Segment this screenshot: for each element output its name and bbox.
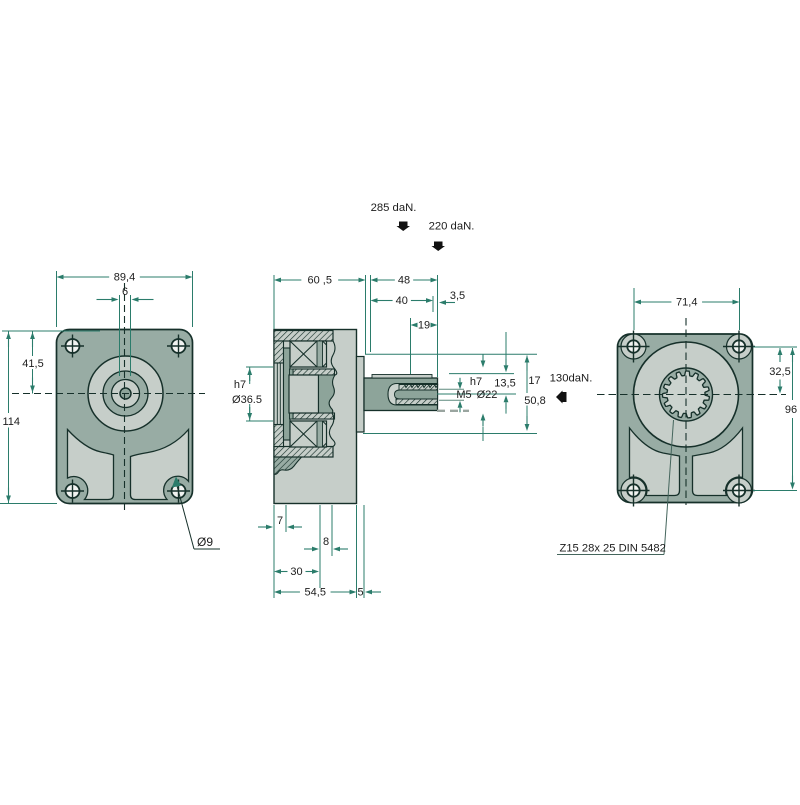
- svg-text:48: 48: [398, 275, 410, 287]
- svg-text:13,5: 13,5: [494, 378, 515, 390]
- svg-text:19: 19: [418, 320, 430, 332]
- svg-text:96: 96: [785, 404, 797, 416]
- svg-text:32,5: 32,5: [769, 366, 790, 378]
- svg-text:6: 6: [122, 286, 128, 298]
- svg-text:Ø22: Ø22: [477, 389, 498, 401]
- svg-text:Ø9: Ø9: [197, 535, 213, 549]
- svg-text:5: 5: [357, 587, 363, 599]
- svg-text:54,5: 54,5: [305, 587, 326, 599]
- svg-text:7: 7: [277, 515, 283, 527]
- svg-text:8: 8: [323, 536, 329, 548]
- svg-text:50,8: 50,8: [524, 395, 545, 407]
- svg-text:89,4: 89,4: [114, 272, 135, 284]
- svg-text:3,5: 3,5: [450, 290, 465, 302]
- svg-text:Z15 28x 25 DIN 5482: Z15 28x 25 DIN 5482: [560, 543, 666, 555]
- svg-text:Ø36.5: Ø36.5: [232, 394, 262, 406]
- svg-text:30: 30: [290, 566, 302, 578]
- svg-text:114: 114: [3, 416, 21, 428]
- svg-text:41,5: 41,5: [22, 358, 43, 370]
- svg-text:40: 40: [396, 295, 408, 307]
- svg-text:71,4: 71,4: [676, 297, 697, 309]
- svg-text:17: 17: [528, 375, 540, 387]
- svg-text:h7: h7: [234, 379, 246, 391]
- svg-text:60 ,5: 60 ,5: [308, 275, 332, 287]
- svg-text:h7: h7: [470, 376, 482, 388]
- svg-text:285 daN.: 285 daN.: [371, 202, 417, 214]
- svg-text:M5: M5: [456, 389, 471, 401]
- svg-text:220 daN.: 220 daN.: [429, 221, 475, 233]
- svg-text:130daN.: 130daN.: [550, 373, 593, 385]
